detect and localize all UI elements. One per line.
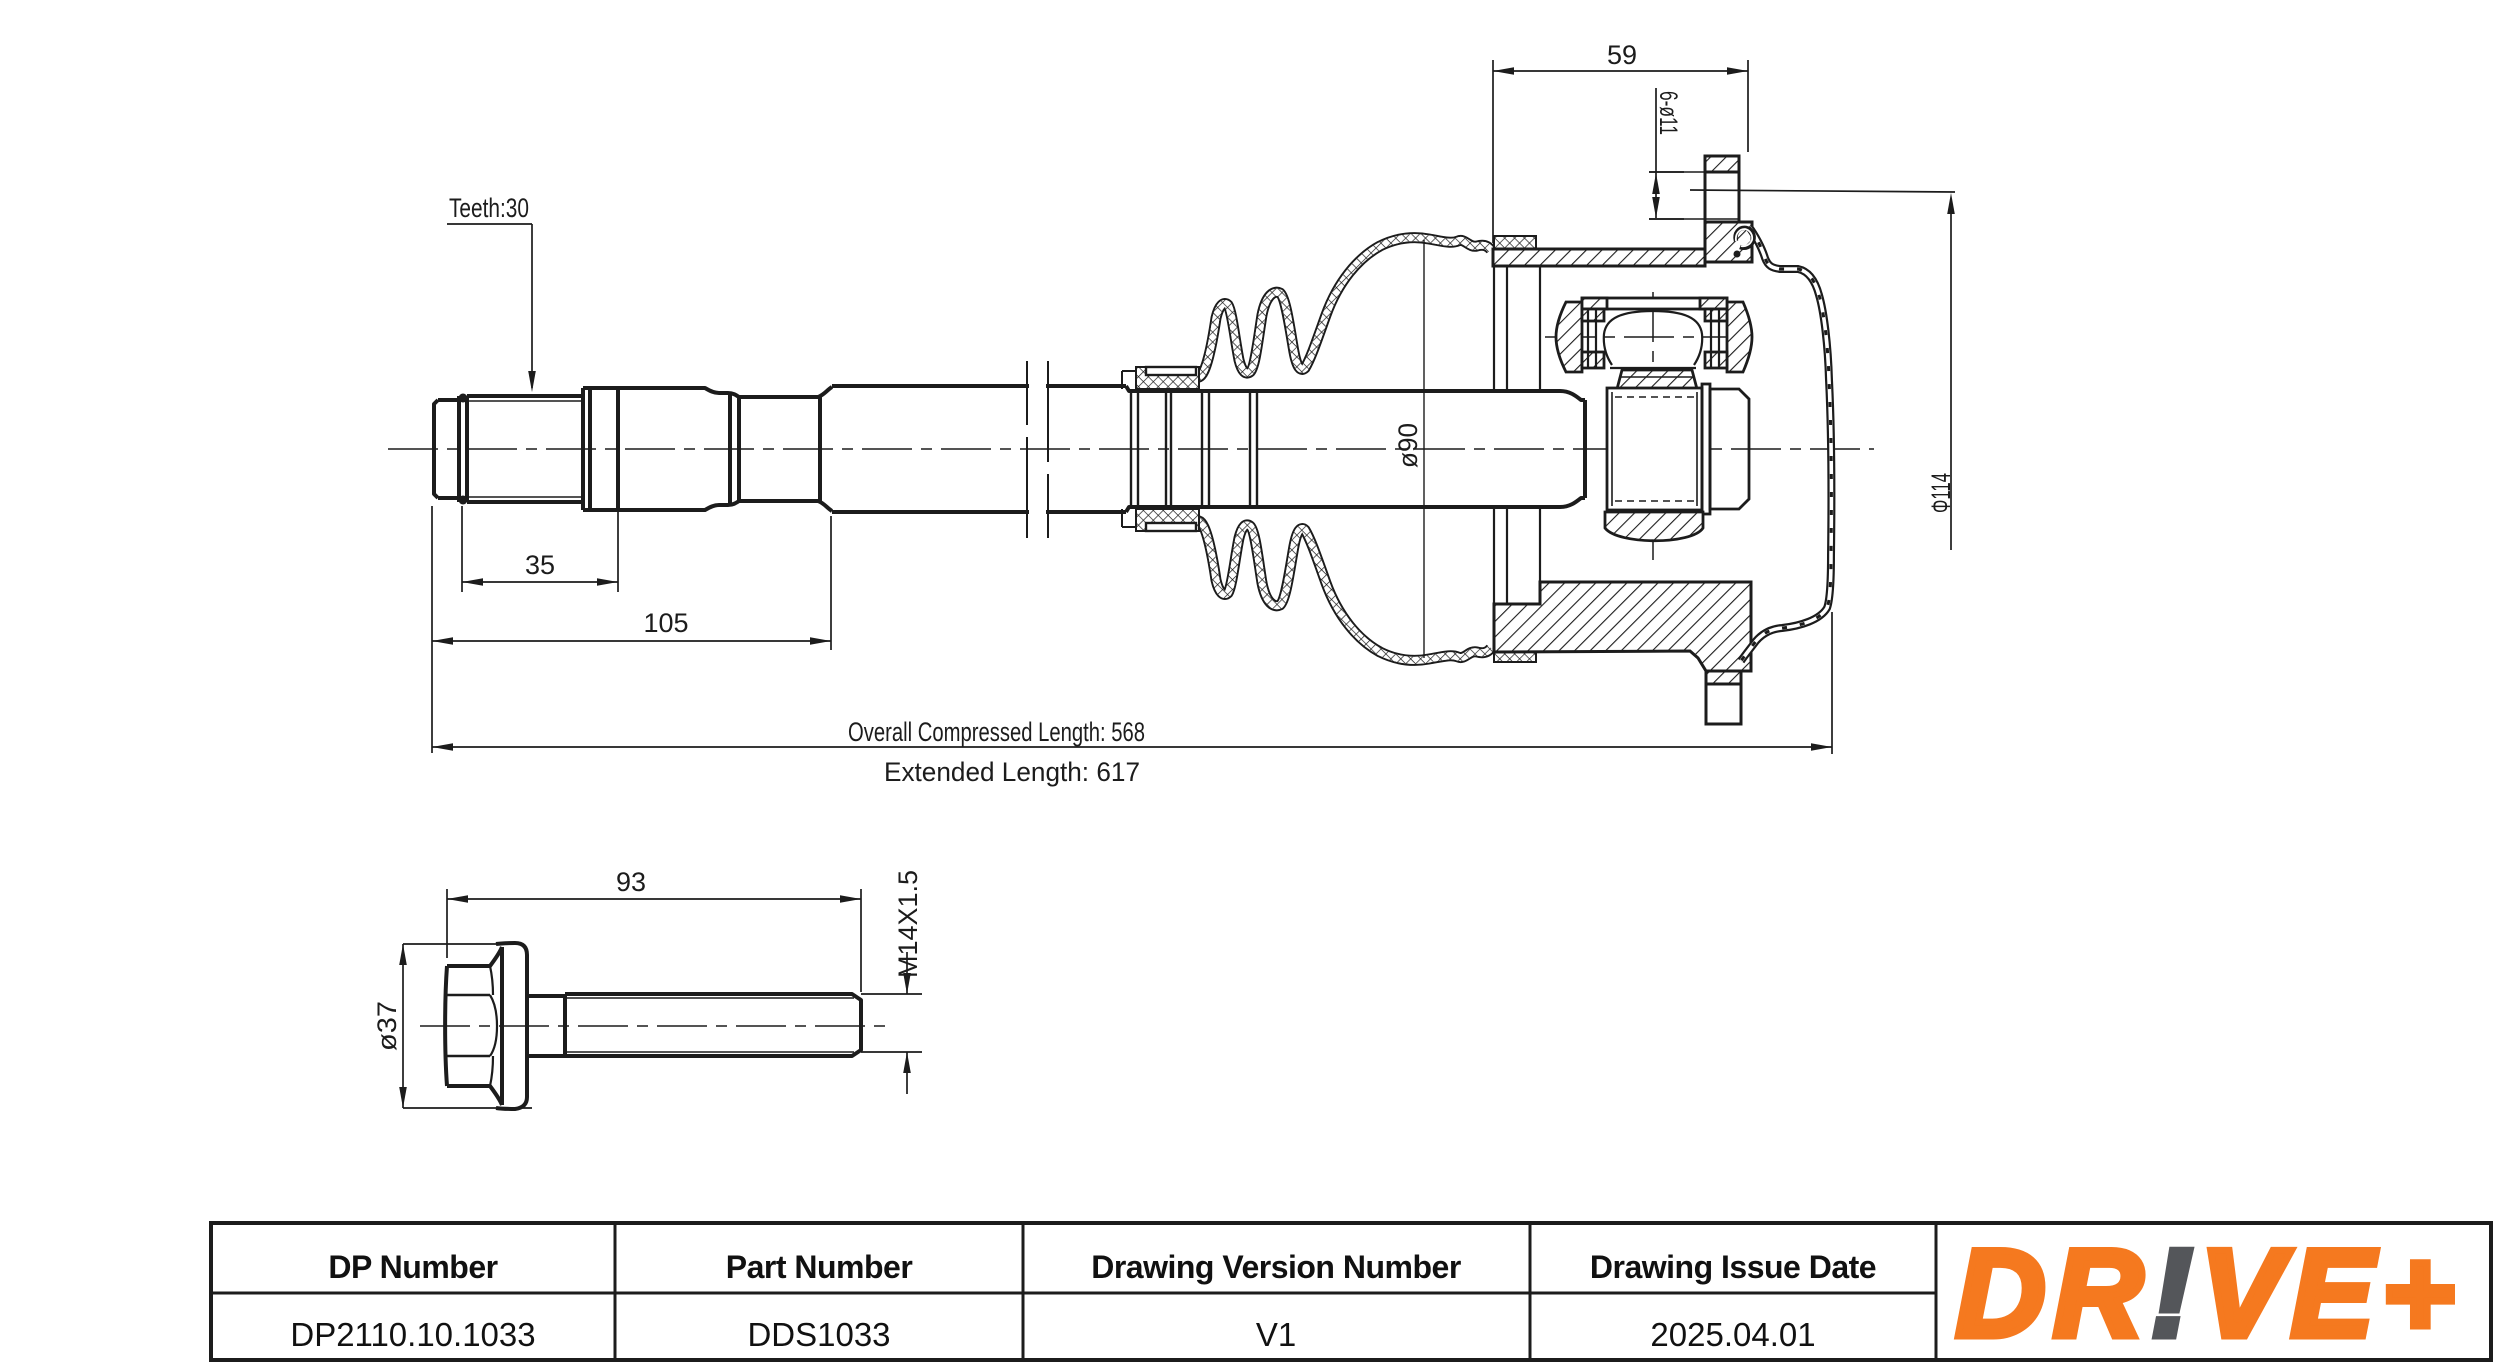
svg-text:M14X1.5: M14X1.5 <box>893 870 923 978</box>
svg-text:ø90: ø90 <box>1393 423 1423 468</box>
svg-text:35: 35 <box>525 550 555 580</box>
svg-text:DP Number: DP Number <box>328 1249 497 1285</box>
svg-text:Overall Compressed Length: 5: Overall Compressed Length: 568 <box>848 717 1145 747</box>
svg-text:105: 105 <box>643 608 688 638</box>
svg-text:Drawing Issue Date: Drawing Issue Date <box>1590 1249 1876 1285</box>
svg-text:DR!VE+: DR!VE+ <box>1956 1225 2462 1363</box>
svg-text:Part Number: Part Number <box>726 1249 913 1285</box>
svg-text:Drawing Version Number: Drawing Version Number <box>1091 1249 1461 1285</box>
svg-text:Extended Length: 617: Extended Length: 617 <box>884 757 1140 787</box>
svg-text:2025.04.01: 2025.04.01 <box>1650 1316 1815 1353</box>
svg-text:59: 59 <box>1607 40 1637 70</box>
svg-text:DDS1033: DDS1033 <box>747 1316 890 1353</box>
svg-text:Teeth:30: Teeth:30 <box>449 193 529 223</box>
svg-text:DP2110.10.1033: DP2110.10.1033 <box>290 1316 535 1353</box>
svg-text:Φ114: Φ114 <box>1926 473 1956 513</box>
svg-text:ø37: ø37 <box>372 1001 402 1051</box>
svg-text:93: 93 <box>616 867 646 897</box>
svg-text:V1: V1 <box>1256 1316 1296 1353</box>
svg-text:6-ø11: 6-ø11 <box>1654 91 1682 135</box>
